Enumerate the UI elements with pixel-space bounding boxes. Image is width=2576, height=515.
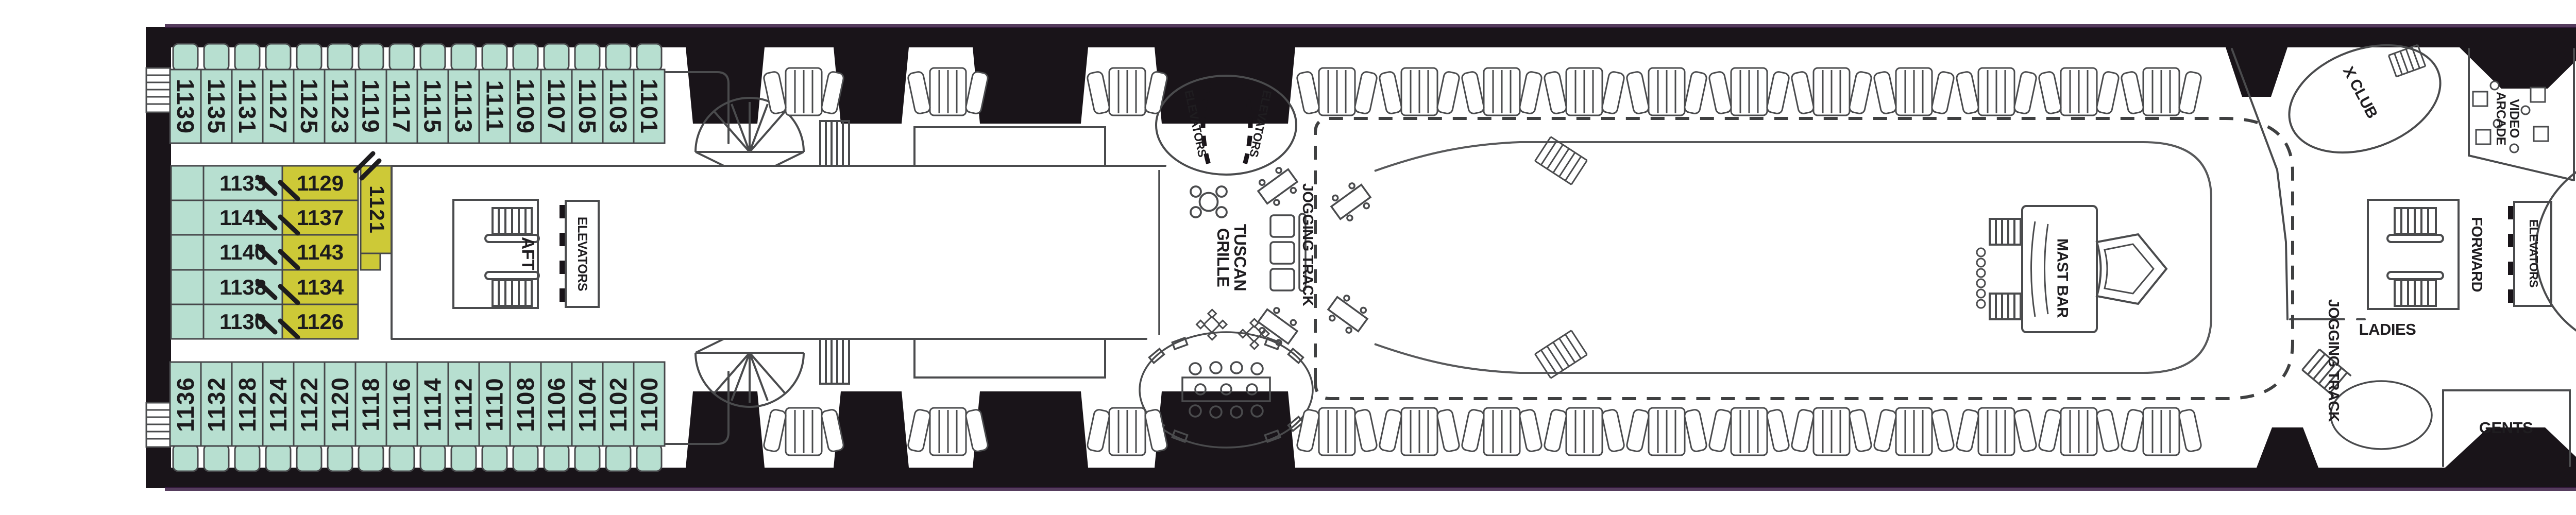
cabin[interactable]: 1120 — [325, 362, 355, 446]
cabin[interactable]: 1136 — [170, 362, 201, 446]
purple-trim-top — [165, 24, 2576, 28]
cabin[interactable]: 1112 — [448, 362, 479, 446]
cabin[interactable]: 1109 — [510, 70, 541, 143]
cabin[interactable]: 1114 — [417, 362, 448, 446]
cabin[interactable]: 1124 — [263, 362, 294, 446]
cabin[interactable]: 1133 — [204, 166, 282, 200]
cabin[interactable]: 1111 — [479, 70, 510, 143]
cabin[interactable]: 1118 — [355, 362, 386, 446]
cabin[interactable]: 1140 — [204, 235, 282, 270]
cabin[interactable]: 1106 — [541, 362, 572, 446]
cabin[interactable]: 1100 — [634, 362, 665, 446]
cabin[interactable]: 1135 — [201, 70, 232, 143]
cabin[interactable]: 1132 — [201, 362, 232, 446]
cabin[interactable]: 1122 — [294, 362, 325, 446]
jogging-track-label: JOGGING TRACK — [1299, 183, 1315, 306]
gents-label: GENTS — [2479, 420, 2533, 436]
cabin[interactable]: 1134 — [282, 270, 358, 304]
tuscan-grille-label: TUSCAN GRILLE — [1214, 223, 1248, 293]
jogging-track-label: JOGGING TRACK — [2325, 299, 2341, 422]
cabin[interactable]: 1121 — [361, 166, 392, 253]
cabin[interactable]: 1125 — [294, 70, 325, 143]
cabin[interactable]: 1113 — [448, 70, 479, 143]
cabin[interactable]: 1117 — [386, 70, 417, 143]
cabin[interactable]: 1123 — [325, 70, 355, 143]
cabin[interactable]: 1107 — [541, 70, 572, 143]
cabin[interactable]: 1137 — [282, 200, 358, 235]
cabin[interactable]: 1128 — [232, 362, 263, 446]
cabin[interactable]: 1138 — [204, 270, 282, 304]
cabin[interactable]: 1139 — [170, 70, 201, 143]
elevators-label: ELEVATORS — [2527, 219, 2539, 287]
cabin[interactable]: 1103 — [603, 70, 634, 143]
cabin[interactable]: 1116 — [386, 362, 417, 446]
cabin[interactable]: 1104 — [572, 362, 603, 446]
elevators-label: ELEVATORS — [575, 217, 588, 291]
aft-label: AFT — [518, 237, 536, 270]
forward-label: FORWARD — [2468, 217, 2484, 292]
cabin[interactable]: 1108 — [510, 362, 541, 446]
cabin[interactable]: 1101 — [634, 70, 665, 143]
cabin[interactable]: 1110 — [479, 362, 510, 446]
cabin[interactable]: 1143 — [282, 235, 358, 270]
cabin[interactable]: 1141 — [204, 200, 282, 235]
cabin[interactable]: 1126 — [282, 304, 358, 339]
ladies-label: LADIES — [2359, 321, 2416, 338]
cabin[interactable]: 1115 — [417, 70, 448, 143]
purple-trim-bottom — [165, 487, 2576, 491]
video-arcade-label: VIDEO ARCADE — [2494, 90, 2520, 147]
mast-bar-label: MAST BAR — [2054, 238, 2070, 318]
cabin[interactable]: 1127 — [263, 70, 294, 143]
deck-plan: 1139 1135 1131 1127 1125 1123 1119 1117 … — [0, 0, 2576, 515]
cabin[interactable]: 1102 — [603, 362, 634, 446]
cabin[interactable]: 1130 — [204, 304, 282, 339]
cabin[interactable]: 1119 — [355, 70, 386, 143]
cabin[interactable]: 1105 — [572, 70, 603, 143]
cabin[interactable]: 1129 — [282, 166, 358, 200]
cabin[interactable]: 1131 — [232, 70, 263, 143]
